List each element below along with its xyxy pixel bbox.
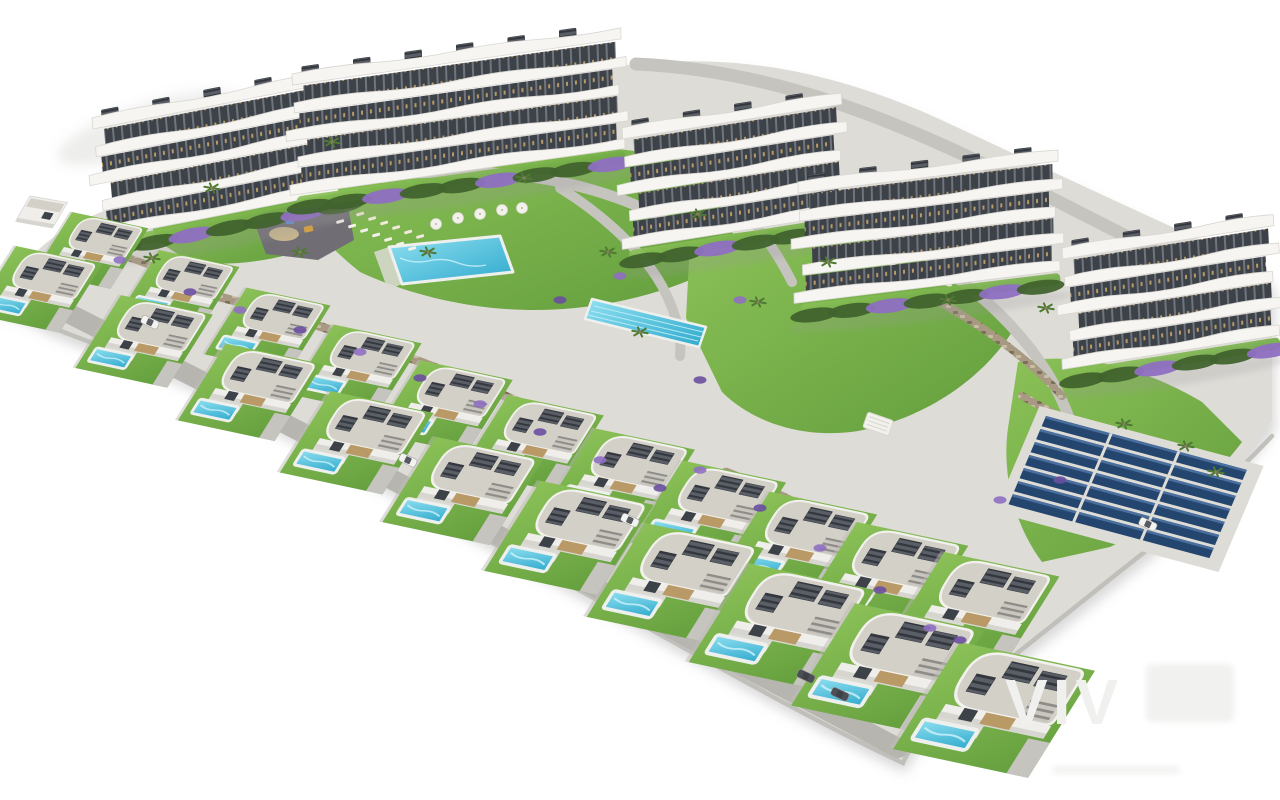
palm-crown [826, 260, 829, 263]
flowering-shrub [234, 306, 247, 314]
flowering-shrub [354, 348, 367, 356]
flowering-shrub [184, 288, 197, 296]
flowering-shrub [474, 400, 487, 408]
flowering-shrub [654, 484, 667, 492]
parasol [517, 203, 528, 214]
parasol [475, 209, 486, 220]
flowering-shrub [294, 326, 307, 334]
flowering-shrub [554, 296, 567, 304]
palm-crown [946, 298, 949, 301]
parasol-pole [521, 207, 523, 209]
flowering-shrub [594, 456, 607, 464]
parasol-pole [435, 223, 437, 225]
parasol-pole [457, 217, 459, 219]
palm-crown [1214, 470, 1217, 473]
watermark-tagline-blob [1052, 766, 1180, 774]
flowering-shrub [754, 504, 767, 512]
palm-crown [150, 256, 153, 259]
flowering-shrub [694, 376, 707, 384]
flowering-shrub [114, 256, 127, 264]
palm-crown [210, 186, 213, 189]
flowering-shrub [954, 636, 967, 644]
flowering-shrub [534, 428, 547, 436]
palm-crown [330, 140, 333, 143]
palm-crown [638, 330, 641, 333]
parasol [453, 213, 464, 224]
flowering-shrub [994, 496, 1007, 504]
flowering-shrub [924, 624, 937, 632]
palm-crown [696, 212, 699, 215]
entrance-kiosk [15, 196, 67, 228]
palm-crown [522, 176, 525, 179]
parasol [431, 219, 442, 230]
flowering-shrub [1054, 476, 1067, 484]
palm-crown [606, 250, 609, 253]
watermark-logo-blob [1146, 664, 1234, 722]
palm-crown [1184, 444, 1187, 447]
palm-crown [298, 250, 301, 253]
parasol-pole [479, 213, 481, 215]
parasol-pole [501, 209, 503, 211]
flowering-shrub [614, 272, 627, 280]
palm-crown [756, 300, 759, 303]
render-canvas: VIV [0, 0, 1280, 800]
flowering-shrub [694, 466, 707, 474]
flowering-shrub [814, 544, 827, 552]
palm-crown [1122, 422, 1125, 425]
flowering-shrub [414, 374, 427, 382]
flowering-shrub [874, 586, 887, 594]
palm-crown [1044, 306, 1047, 309]
watermark-text: VIV [1005, 666, 1123, 738]
parasol [497, 205, 508, 216]
development-aerial-render: VIV [0, 0, 1280, 800]
flowering-shrub [734, 296, 747, 304]
palm-crown [426, 250, 429, 253]
